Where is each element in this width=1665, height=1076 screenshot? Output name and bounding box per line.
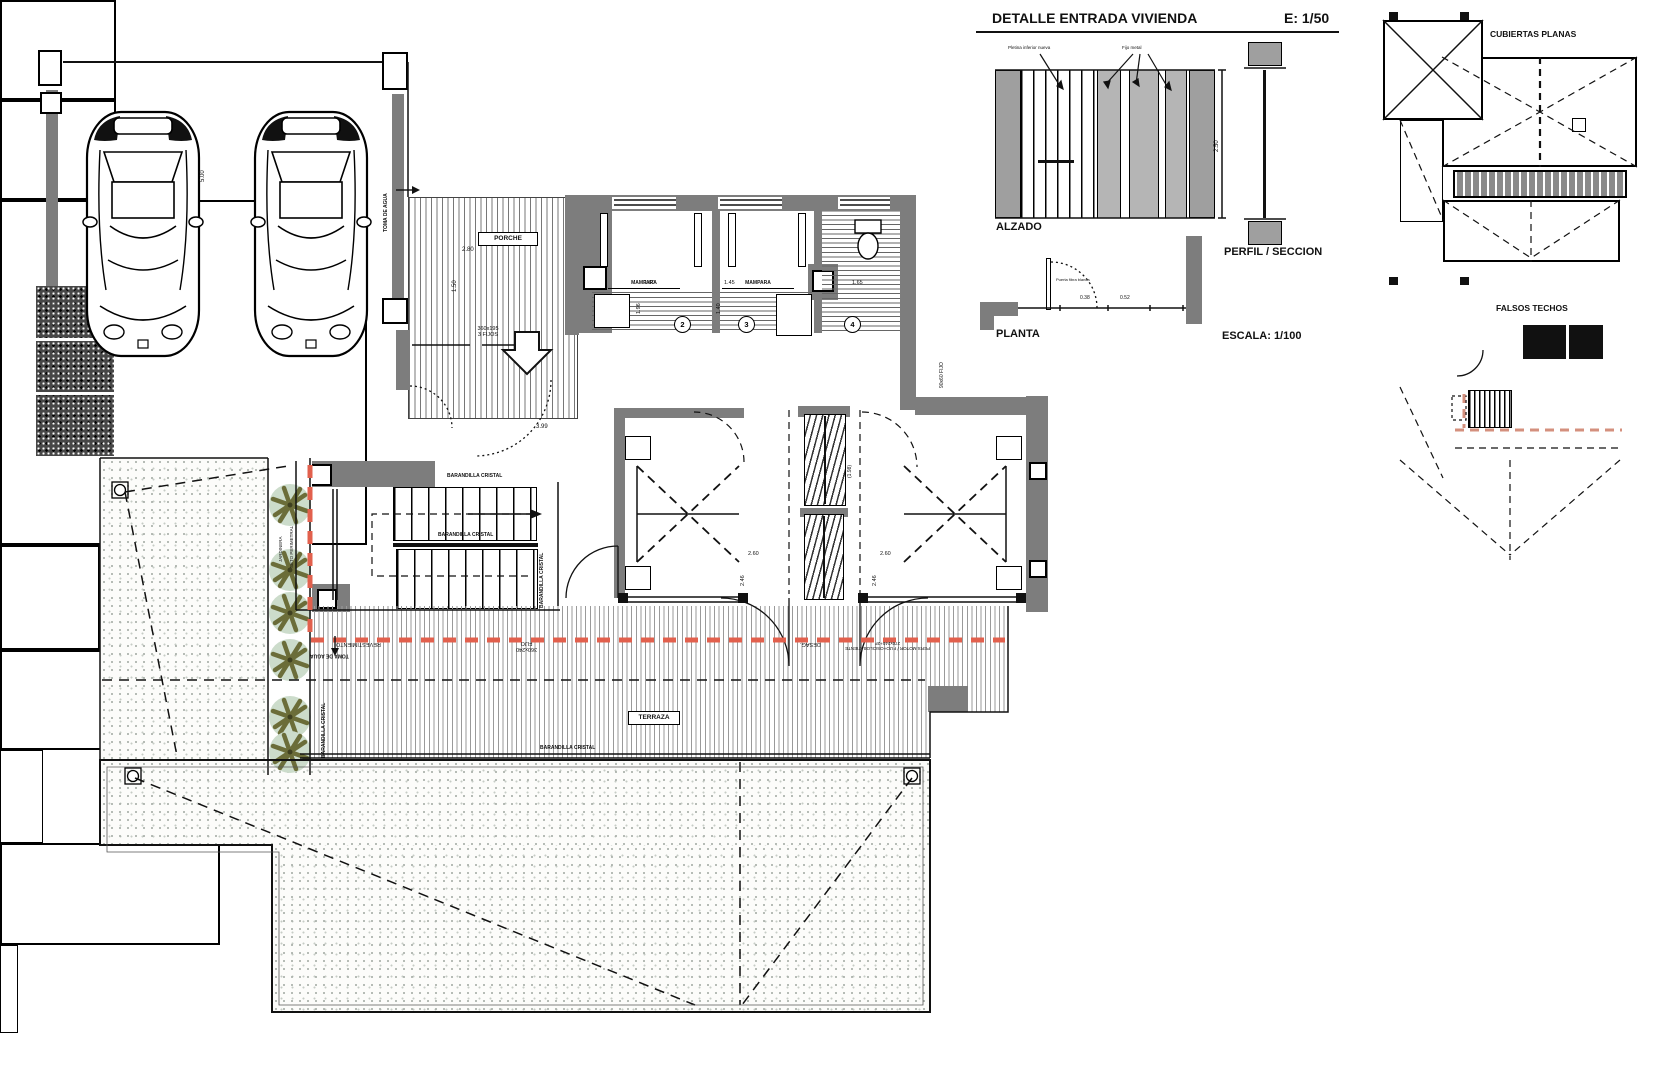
drain-icon [904, 768, 920, 784]
dim-label: 2.50 [1214, 140, 1221, 152]
barandilla-label: BARANDILLA CRISTAL [447, 474, 502, 480]
toma-agua-label: TOMA DE AGUA [384, 193, 390, 232]
detail-title: DETALLE ENTRADA VIVIENDA [992, 11, 1197, 26]
toilet-icon [855, 220, 881, 259]
porch-window-count: 3 FIJOS [452, 332, 524, 338]
planter-label: JARDINERA [279, 536, 284, 562]
dim-label: 3.99 [536, 424, 548, 431]
annotation: DESAG. [800, 641, 821, 647]
dim-label: 2.46 [872, 575, 878, 586]
barandilla-label: BARANDILLA CRISTAL [438, 533, 493, 539]
alzado-label: ALZADO [996, 221, 1042, 233]
stair-direction-arrow [530, 509, 542, 519]
porch-label: PORCHE [478, 232, 538, 246]
dim-label: 1.65 [852, 280, 863, 286]
porch-window-label: 360x195 3 FIJOS [452, 326, 524, 338]
pink-section-line [1455, 394, 1622, 430]
dim-label: 1.60 [644, 280, 655, 286]
cars [83, 112, 371, 356]
perfil-label: PERFIL / SECCION [1224, 246, 1322, 258]
cubiertas-label: CUBIERTAS PLANAS [1490, 30, 1576, 39]
dim-label: 0.52 [1120, 296, 1130, 302]
barandilla-label: BARANDILLA CRISTAL [322, 703, 328, 758]
dim-label: (1.98) [848, 465, 854, 478]
annotation-line: 360x240 [516, 646, 537, 652]
dim-label: 1.50 [452, 280, 459, 292]
terrace-label: TERRAZA [628, 711, 680, 725]
drain-icon [125, 768, 141, 784]
barandilla-label: BARANDILLA CRISTAL [540, 553, 546, 608]
linework-overlay [0, 0, 1665, 1076]
dashed-lines [102, 466, 925, 1005]
room-number: 4 [844, 316, 861, 333]
detail-note: Puerta fibra blanca [1056, 278, 1090, 282]
detail-scale: E: 1/50 [1284, 11, 1329, 26]
red-section-line [310, 465, 1005, 640]
dim-label: 1.40 [716, 303, 722, 314]
falsos-label: FALSOS TECHOS [1496, 304, 1568, 313]
annotation: PERS.MOTOR / FIJO+OSCILOBATIENTE 270x240… [845, 640, 930, 650]
planta-label: PLANTA [996, 328, 1040, 340]
dim-label: 5.00 [200, 170, 207, 182]
planter-label: SETO PERIMETRAL [290, 526, 295, 568]
lower-terrace-outline [100, 760, 930, 1012]
room-number: 2 [674, 316, 691, 333]
window-spec-label: 90x60 FIJO [940, 362, 946, 388]
detail-note: Fijo metal [1122, 46, 1142, 51]
lower-terrace-inner-line [107, 767, 923, 1005]
entrance-arrow [503, 332, 551, 374]
dim-label: 2.60 [880, 551, 891, 557]
floor-plan-sheet: PORCHE TERRAZA BARANDILLA CRISTAL BARAND… [0, 0, 1665, 1076]
dim-label: 1.96 [636, 303, 642, 314]
dim-label: 0.38 [1080, 296, 1090, 302]
dim-label: 1.45 [724, 280, 735, 286]
door-arcs [410, 262, 1483, 666]
annotation: REVESTIMIENTO [336, 641, 381, 647]
barandilla-label: BARANDILLA CRISTAL [540, 746, 595, 752]
dim-label: 2.60 [748, 551, 759, 557]
toma-agua-label: TOMA DE AGUA [310, 652, 349, 658]
room-number: 3 [738, 316, 755, 333]
annotation: 360x240 FIJO [516, 640, 537, 652]
leader-lines [1040, 54, 1171, 90]
water-arrow [412, 186, 420, 194]
escala-label: ESCALA: 1/100 [1222, 330, 1301, 342]
dim-label: 2.80 [462, 247, 474, 254]
dim-label: 2.46 [740, 575, 746, 586]
detail-note: Pletina inferior nueva [1008, 46, 1050, 51]
